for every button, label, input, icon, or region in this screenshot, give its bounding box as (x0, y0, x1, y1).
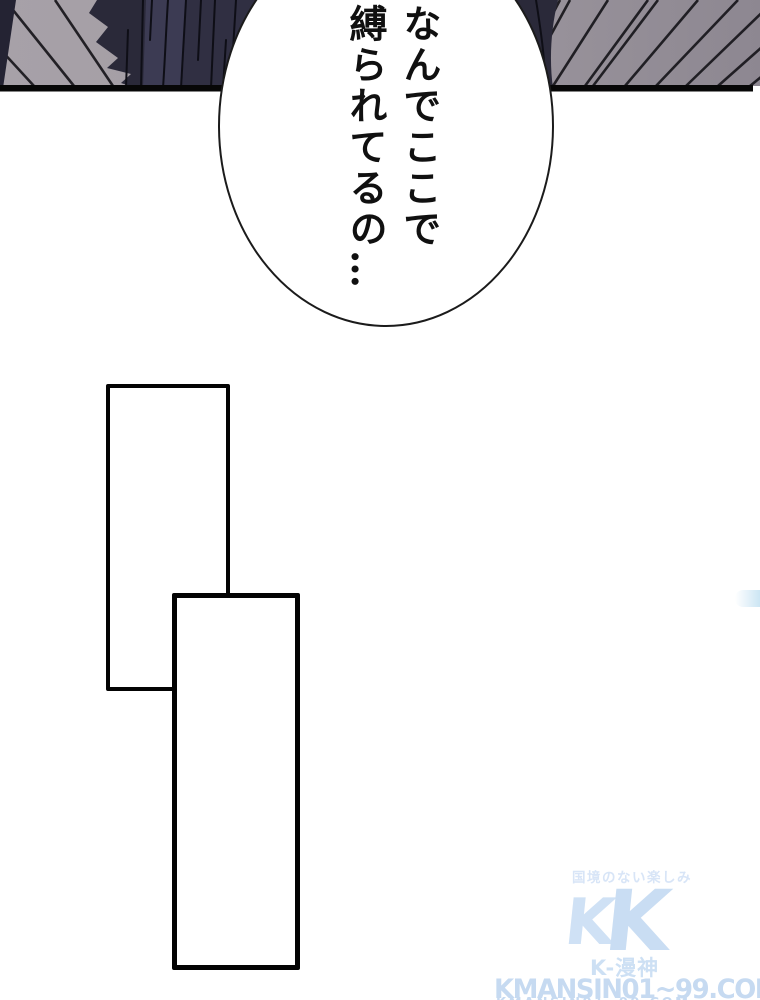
watermark-k-logo-icon: K K (568, 876, 708, 956)
site-watermark: 国境のない楽しみ K K K-漫神 KMANSIN01~99.COM KMANS… (488, 858, 760, 1000)
manga-page: なんでここで 縛られてるの… 国境のない楽しみ K K K-漫神 KMANSIN… (0, 0, 760, 1000)
watermark-smudge (735, 590, 760, 607)
empty-panel-lower (172, 593, 300, 970)
watermark-clipped-row: KMANSIN01~99.COM (496, 996, 752, 1000)
dialogue-column-1: なんでここで (392, 4, 446, 334)
logo-k-front: K (600, 876, 678, 956)
dialogue-text: なんでここで 縛られてるの… (338, 0, 446, 334)
dialogue-column-2: 縛られてるの… (338, 4, 392, 334)
